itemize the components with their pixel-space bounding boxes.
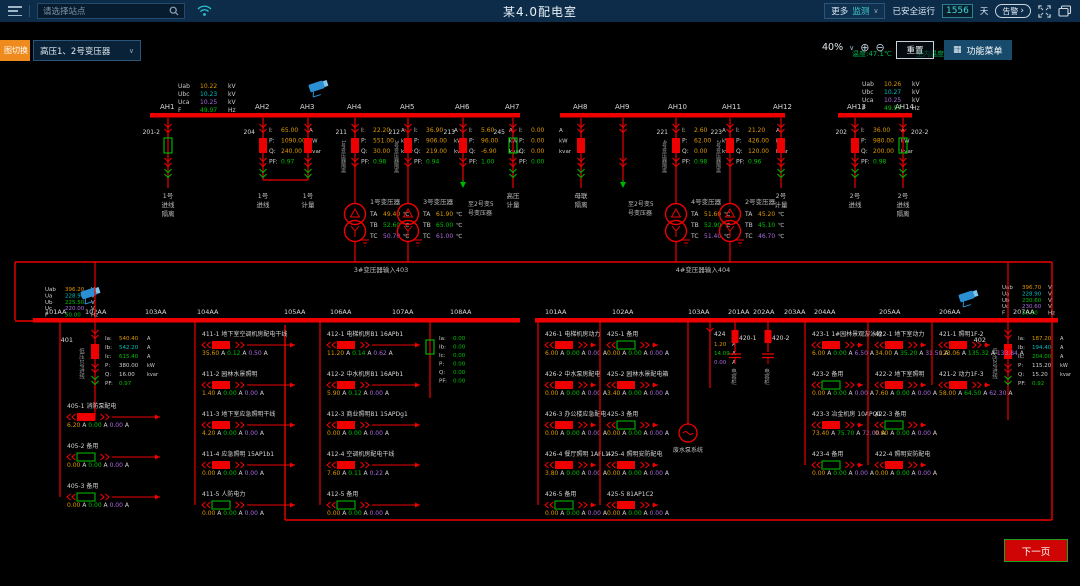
feeder-row-label: 422-3 备用 [875,410,906,418]
hv-feeder-vlabel: 2号变压器隔离 [715,140,721,175]
breaker-closed[interactable] [851,138,859,153]
hv-feeder-id: 223 [711,129,723,136]
diagram-text: 46.70 [758,233,775,240]
chevron-icon [550,462,554,468]
chevron-icon [101,454,105,460]
chevron-icon [327,342,331,348]
chevron-icon [241,462,245,468]
hv-feeder-id: 211 [336,129,348,136]
arrow-right-icon [155,455,160,460]
feeder-row-label: 405-3 备用 [67,482,98,490]
diagram-text: I: [736,127,740,134]
camera-icon[interactable] [958,289,980,307]
feeder-currents: 0.00 A 0.00 A 0.00 A [202,470,265,477]
feeder-currents: 0.00 A 0.00 A 0.00 A [545,390,608,397]
feeder-breaker-closed[interactable] [212,461,230,469]
chevron-icon [101,414,105,420]
chevron-icon [545,342,549,348]
chevron-icon [612,462,616,468]
chevron-icon [106,454,110,460]
feeder-currents: 0.00 A 0.00 A 0.00 A [812,390,875,397]
chevron-icon [875,422,879,428]
transformer-name: 4号变压器 [691,197,722,206]
hv-bus [560,113,785,118]
diagram-text: I: [682,127,686,134]
chevron-icon [646,342,650,348]
diagram-text: Q: [682,148,689,155]
arrow-right-icon [591,463,596,468]
feeder-currents: 0.00 A 0.00 A 0.00 A [327,430,390,437]
diagram-text: Hz [1048,311,1055,317]
diagram-text: F [1002,311,1005,317]
chevron-icon [327,382,331,388]
diagram-text: PF: [736,159,745,166]
feeder-row-label: 421-1 照明1F-2 [939,331,984,338]
chevron-icon [361,422,365,428]
zoom-percent[interactable]: 40% [822,42,843,53]
diagram-text: 5.60 [481,127,495,134]
feeder-breaker-closed[interactable] [949,341,967,349]
diagram-text: 45.20 [758,211,775,218]
feeder-breaker-open[interactable] [337,501,355,509]
feeder-currents: 11.20 A 0.14 A 0.62 A [327,350,394,357]
diagram-text: Uab [178,83,190,90]
chevron-icon [646,462,650,468]
chevron-icon [550,382,554,388]
feeder-breaker-closed[interactable] [822,421,840,429]
fullscreen-icon[interactable] [1038,5,1051,18]
diagram-text: 380.00 [119,363,139,369]
feeder-row-label: 412-2 中水机房B1 16APb1 [327,370,403,378]
feeder-breaker-closed[interactable] [617,381,635,389]
arrow-right-icon [921,383,926,388]
hv-feeder-caption: 1号 [258,192,269,200]
chevron-icon [106,414,110,420]
chevron-icon [817,342,821,348]
chevron-icon [332,382,336,388]
diagram-text: -6.90 [481,148,497,155]
diagram-text: Ia: [1018,336,1025,342]
feeder-breaker-closed[interactable] [555,381,573,389]
reset-button[interactable]: 重置 [896,41,934,59]
feeder-breaker-closed[interactable] [885,341,903,349]
feeder-breaker-closed[interactable] [885,381,903,389]
transformer-primary[interactable] [345,204,366,225]
feeder-row-label: 412-4 空调机房配电干线 [327,450,394,458]
diagram-text: kvar [1060,372,1072,378]
diagram-text: kW [559,139,568,145]
feeder-breaker-closed[interactable] [555,461,573,469]
chevron-icon [550,422,554,428]
lv-bus-label: 207AA [1013,308,1035,316]
tx-input-label: 4#变压器输入404 [676,265,731,274]
diagram-text: Ib: [439,345,446,351]
chevron-icon [851,382,855,388]
diagram-text: 16.00 [119,372,135,378]
capacitor-vlabel: 电容柜 [763,367,770,386]
chevron-icon [914,422,918,428]
capacitor-symbol [762,354,774,358]
diagram-text: 65.00 [436,222,453,229]
breaker-closed[interactable] [304,138,312,153]
chevron-icon [207,422,211,428]
diagram-text: ℃ [778,233,784,240]
diagram-text: 至2号变5 [628,200,654,208]
diagram-text: V [1048,285,1052,291]
diagram-text: TB [422,222,431,229]
diagram-text: 30.00 [373,148,390,155]
chevron-icon [612,382,616,388]
feeder-breaker-closed[interactable] [617,501,635,509]
hamburger-menu-icon[interactable] [8,6,22,16]
breaker-closed[interactable] [672,138,680,153]
delta-symbol [351,209,360,217]
feeder-breaker-closed[interactable] [77,413,95,421]
diagram-text: 10.25 [200,99,217,106]
diagram-text: 61.00 [436,233,453,240]
chevron-icon [545,382,549,388]
chevron-icon [202,462,206,468]
ground-symbol [682,240,690,246]
zoom-in-icon[interactable]: ⊕ [860,42,869,53]
chevron-icon [72,454,76,460]
alarm-badge[interactable]: 告警› [995,4,1031,18]
station-search-input[interactable]: 请选择站点 [37,3,185,19]
diagram-text: 0.00 [453,370,466,376]
diagram-text: 号变压器 [628,209,652,217]
hv-bus-label: AH9 [615,103,630,111]
hv-feeder-caption: 进线 [257,200,271,209]
arrow-right-icon [290,383,295,388]
lv-bus [33,318,520,323]
feeder-currents: 7.60 A 0.00 A 0.00 A [875,390,938,397]
chevron-icon [812,382,816,388]
hv-feeder-caption: 进线 [897,200,911,209]
next-page-button[interactable]: 下一页 [1004,539,1068,562]
feeder-breaker-open[interactable] [212,501,230,509]
feeder-breaker-closed[interactable] [212,421,230,429]
chevron-icon [332,342,336,348]
single-line-diagram: Uab10.22kVUbc10.23kVUca10.25kVF49.97HzUa… [0,0,1080,586]
chevron-icon [579,422,583,428]
diagram-text: Ua [45,293,52,299]
breaker-closed[interactable] [351,138,359,153]
feeder-row-label: 422-4 照明安防配电 [875,450,930,458]
diagram-text: kV [912,89,920,96]
wye-symbol [672,226,680,237]
diagram-text: TA [422,211,431,218]
diagram-text: 0.96 [748,159,762,166]
chevron-icon [579,342,583,348]
feeder-breaker-closed[interactable] [337,341,355,349]
diagram-text: kV [228,99,236,106]
chevron-icon [236,502,240,508]
diagram-text: A [722,128,726,134]
chevron-icon [875,342,879,348]
hv-bus-label: AH12 [773,103,792,111]
transformer-name: 1号变压器 [370,197,401,206]
diagram-text: TB [369,222,378,229]
chevron-icon [327,422,331,428]
transformer-selector[interactable]: 高压1、2号变压器∨ [33,40,141,61]
chevron-icon [241,422,245,428]
chevron-icon [944,342,948,348]
diagram-text: 219.00 [426,148,447,155]
feeder-breaker-closed[interactable] [617,461,635,469]
diagram-text: P: [105,363,110,369]
hv-bus [150,113,300,118]
hv-feeder-caption: 2号 [776,192,787,200]
diagram-text: I: [469,127,473,134]
feeder-breaker-closed[interactable] [212,341,230,349]
chevron-icon [846,342,850,348]
feeder-breaker-closed[interactable] [822,341,840,349]
chevron-icon [327,502,331,508]
chevron-icon [812,342,816,348]
diagram-text: Q: [105,372,111,378]
diagram-text: TB [744,222,753,229]
hv-bus-label: AH8 [573,103,588,111]
incomer-breaker[interactable] [91,344,99,359]
chevron-icon [817,422,821,428]
breaker-closed[interactable] [726,138,734,153]
chevron-icon [641,382,645,388]
feeder-currents: 0.00 A 0.00 A 0.00 A [607,350,670,357]
diagram-text: 10.27 [884,89,901,96]
lv-bus-label: 103AA [145,308,167,316]
arrow-right-icon [591,503,596,508]
arrow-right-icon [591,343,596,348]
chevron-icon [366,422,370,428]
diagram-text: A [147,345,151,351]
feeder-currents: 123.06 A 135.32 A 133.84 A [939,350,1025,357]
diagram-text: 0.00 [453,345,466,351]
diagram-text: P: [269,138,275,145]
breaker-closed[interactable] [577,138,585,153]
camera-icon[interactable] [308,79,330,97]
diagram-text: 0.00 [531,127,545,134]
hv-bus-label: AH11 [722,103,741,111]
diagram-text: 426.00 [748,138,769,145]
diagram-text: P: [414,138,420,145]
arrow-right-icon [415,383,420,388]
feeder-breaker-open[interactable] [822,461,840,469]
feeder-breaker-open[interactable] [617,341,635,349]
diagram-text: A [1060,354,1064,360]
hv-feeder-vlabel: 4号变压器隔离 [661,140,667,175]
diagram-text: 1.00 [481,159,495,166]
hv-feeder-id: 204 [244,129,256,136]
breaker-closed[interactable] [404,138,412,153]
chevron-icon [332,422,336,428]
feeder-breaker-closed[interactable] [555,341,573,349]
chevron-icon [361,382,365,388]
chevron-icon [939,382,943,388]
transformer-primary[interactable] [666,204,687,225]
feeder-row-label: 411-5 人防电力 [202,490,245,498]
diagram-text: P: [1018,363,1023,369]
arrow-right-icon [653,423,658,428]
chevron-icon [550,342,554,348]
hv-bus-label: AH4 [347,103,362,111]
diagram-text: V [1048,298,1052,304]
chevron-icon [236,342,240,348]
diagram-text: PF: [361,159,370,166]
chevron-icon [584,502,588,508]
diagram-text: P: [736,138,742,145]
scada-stage: 请选择站点 某4.0配电室 更多监测∨ 已安全运行 1556 天 告警› [0,0,1080,586]
diagram-text: kW [901,139,910,145]
chevron-icon [909,422,913,428]
feeder-row-label: 425-1 备用 [607,330,638,338]
diagram-text: Q: [469,148,476,155]
feeder-breaker-open[interactable] [555,501,573,509]
lv-bus-label: 206AA [939,308,961,316]
diagram-switch-tab[interactable]: 图切换 [0,40,30,61]
chevron-icon [579,502,583,508]
chevron-icon [366,502,370,508]
feeder-breaker-open[interactable] [77,453,95,461]
chevron-icon [846,462,850,468]
arrow-down-icon [460,182,466,188]
more-monitor-button[interactable]: 更多监测∨ [824,3,885,19]
feeder-row-label: 425-3 备用 [607,410,638,418]
chevron-icon [612,422,616,428]
diagram-text: P: [519,138,525,145]
chevron-icon [72,414,76,420]
lv-bus-label: 101AA [45,308,67,316]
header-bar: 请选择站点 某4.0配电室 更多监测∨ 已安全运行 1556 天 告警› [0,0,1080,22]
chevron-icon [607,382,611,388]
diagram-text: Ic: [439,353,446,359]
feeder-breaker-closed[interactable] [949,381,967,389]
windows-icon[interactable] [1058,5,1072,17]
chevron-icon [366,342,370,348]
feeder-currents: 0.00 A 0.00 A 0.00 A [607,510,670,517]
arrow-right-icon [155,415,160,420]
lv-bus-label: 204AA [814,308,836,316]
feeder-row-label: 425-2 园林水景配电箱 [607,370,668,378]
feeder-currents: 0.00 A 0.00 A 0.00 A [327,510,390,517]
hv-feeder-caption: 母联 [575,191,589,200]
feeder-currents: 35.60 A 0.12 A 0.50 A [202,350,269,357]
arrow-right-icon [591,423,596,428]
diagram-text: 230.60 [1022,298,1042,304]
hv-bus-label: AH14 [895,103,915,111]
diagram-text: ℃ [456,211,462,218]
chevron-icon [67,454,71,460]
feeder-breaker-closed[interactable] [337,421,355,429]
diagram-text: 36.90 [426,127,443,134]
capacitor-breaker[interactable] [732,330,739,343]
chevron-icon [880,422,884,428]
capacitor-id: 420-2 [772,335,790,342]
chevron-icon [241,342,245,348]
feeder-breaker-open[interactable] [822,381,840,389]
breaker-closed[interactable] [459,138,467,153]
zoom-out-icon[interactable]: ⊖ [875,42,884,53]
diagram-text: Q: [361,148,368,155]
search-icon[interactable] [169,6,179,16]
chevron-icon [67,494,71,500]
diagram-text: 0.00 [453,362,466,368]
diagram-text: 14.09 [714,351,730,357]
ground-symbol [736,240,744,246]
feeder-currents: 3.40 A 0.00 A 0.00 A [607,390,670,397]
feeder-breaker-closed[interactable] [885,461,903,469]
diagram-text: Hz [228,107,236,114]
feeder-currents: 6.00 A 0.00 A 6.50 A [812,350,875,357]
chevron-icon [914,462,918,468]
diagram-text: 10.22 [200,83,217,90]
diagram-text: 228.90 [1022,291,1042,297]
diagram-text: 49.97 [200,107,217,114]
feeder-row-label: 421-2 动力1F-3 [939,370,984,378]
diagram-text: 36.00 [873,127,890,134]
diagram-text: kW [147,363,155,369]
diagram-text: 45.10 [758,222,775,229]
diagram-text: 0.98 [873,159,887,166]
chevron-icon [332,462,336,468]
feeder-breaker-open[interactable] [617,421,635,429]
chevron-icon [641,422,645,428]
diagram-text: PF: [519,159,528,166]
hv-feeder-caption: 隔离 [162,209,176,218]
diagram-text: 15.20 [1032,372,1048,378]
chevron-icon [646,382,650,388]
feeder-breaker-closed[interactable] [337,461,355,469]
function-menu-button[interactable]: ▦ 功能菜单 [944,40,1012,60]
feeder-breaker-open[interactable] [885,421,903,429]
diagram-text: 0.00 [531,159,545,166]
lv-bus [535,318,1058,323]
diagram-text: 96.00 [481,138,498,145]
breaker-closed[interactable] [259,138,267,153]
feeder-breaker-closed[interactable] [212,381,230,389]
diagram-text: 551.00 [373,138,394,145]
hv-feeder-caption: 计量 [775,200,789,209]
arrow-right-icon [290,503,295,508]
diagram-text: kV [228,83,236,90]
lv-bus-label: 104AA [197,308,219,316]
zoom-chevron-icon[interactable]: ∨ [849,44,854,52]
arrow-right-icon [858,463,863,468]
chevron-icon [978,382,982,388]
diagram-text: V [1048,291,1052,297]
arrow-right-icon [290,423,295,428]
feeder-breaker-open[interactable] [77,493,95,501]
arrow-right-icon [985,383,990,388]
capacitor-breaker[interactable] [765,330,772,343]
diagram-text: A [1060,345,1064,351]
chevron-icon [641,502,645,508]
diagram-text: 396.70 [1022,285,1042,291]
arrow-right-icon [415,503,420,508]
chevron-icon [579,382,583,388]
hv-feeder-id: 201-2 [143,129,161,136]
breaker-closed[interactable] [777,138,785,153]
chevron-icon [646,502,650,508]
diagram-text: Uca [178,99,190,106]
diagram-text: 120.00 [748,148,769,155]
feeder-breaker-closed[interactable] [337,381,355,389]
chevron-icon [909,382,913,388]
feeder-row-label: 411-1 地下室空调机房配电干线 [202,330,287,338]
diagram-text: 0.92 [1032,381,1044,387]
feeder-breaker-closed[interactable] [555,421,573,429]
diagram-text: Ib: [105,345,112,351]
wifi-icon[interactable] [197,5,212,17]
